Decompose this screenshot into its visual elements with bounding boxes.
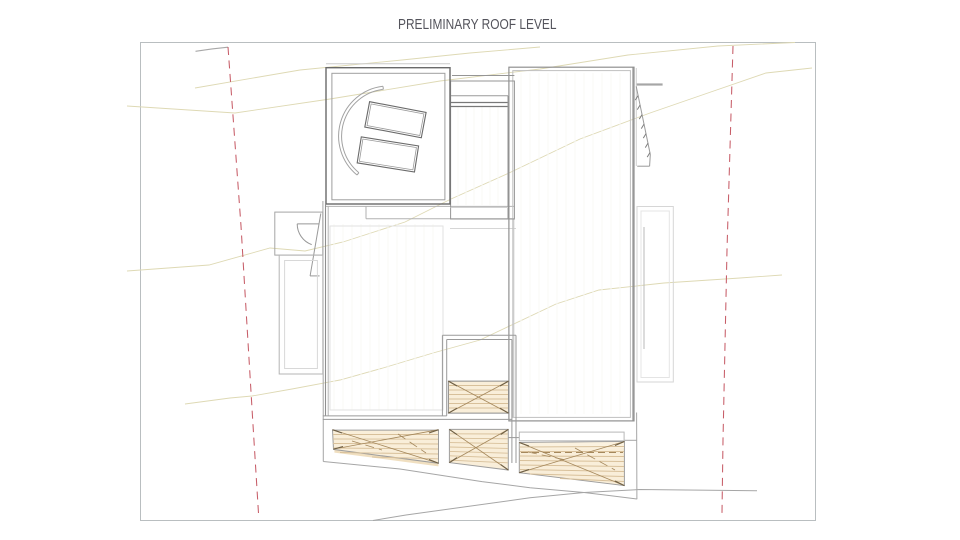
svg-text:PRELIMINARY ROOF LEVEL: PRELIMINARY ROOF LEVEL bbox=[398, 16, 557, 33]
